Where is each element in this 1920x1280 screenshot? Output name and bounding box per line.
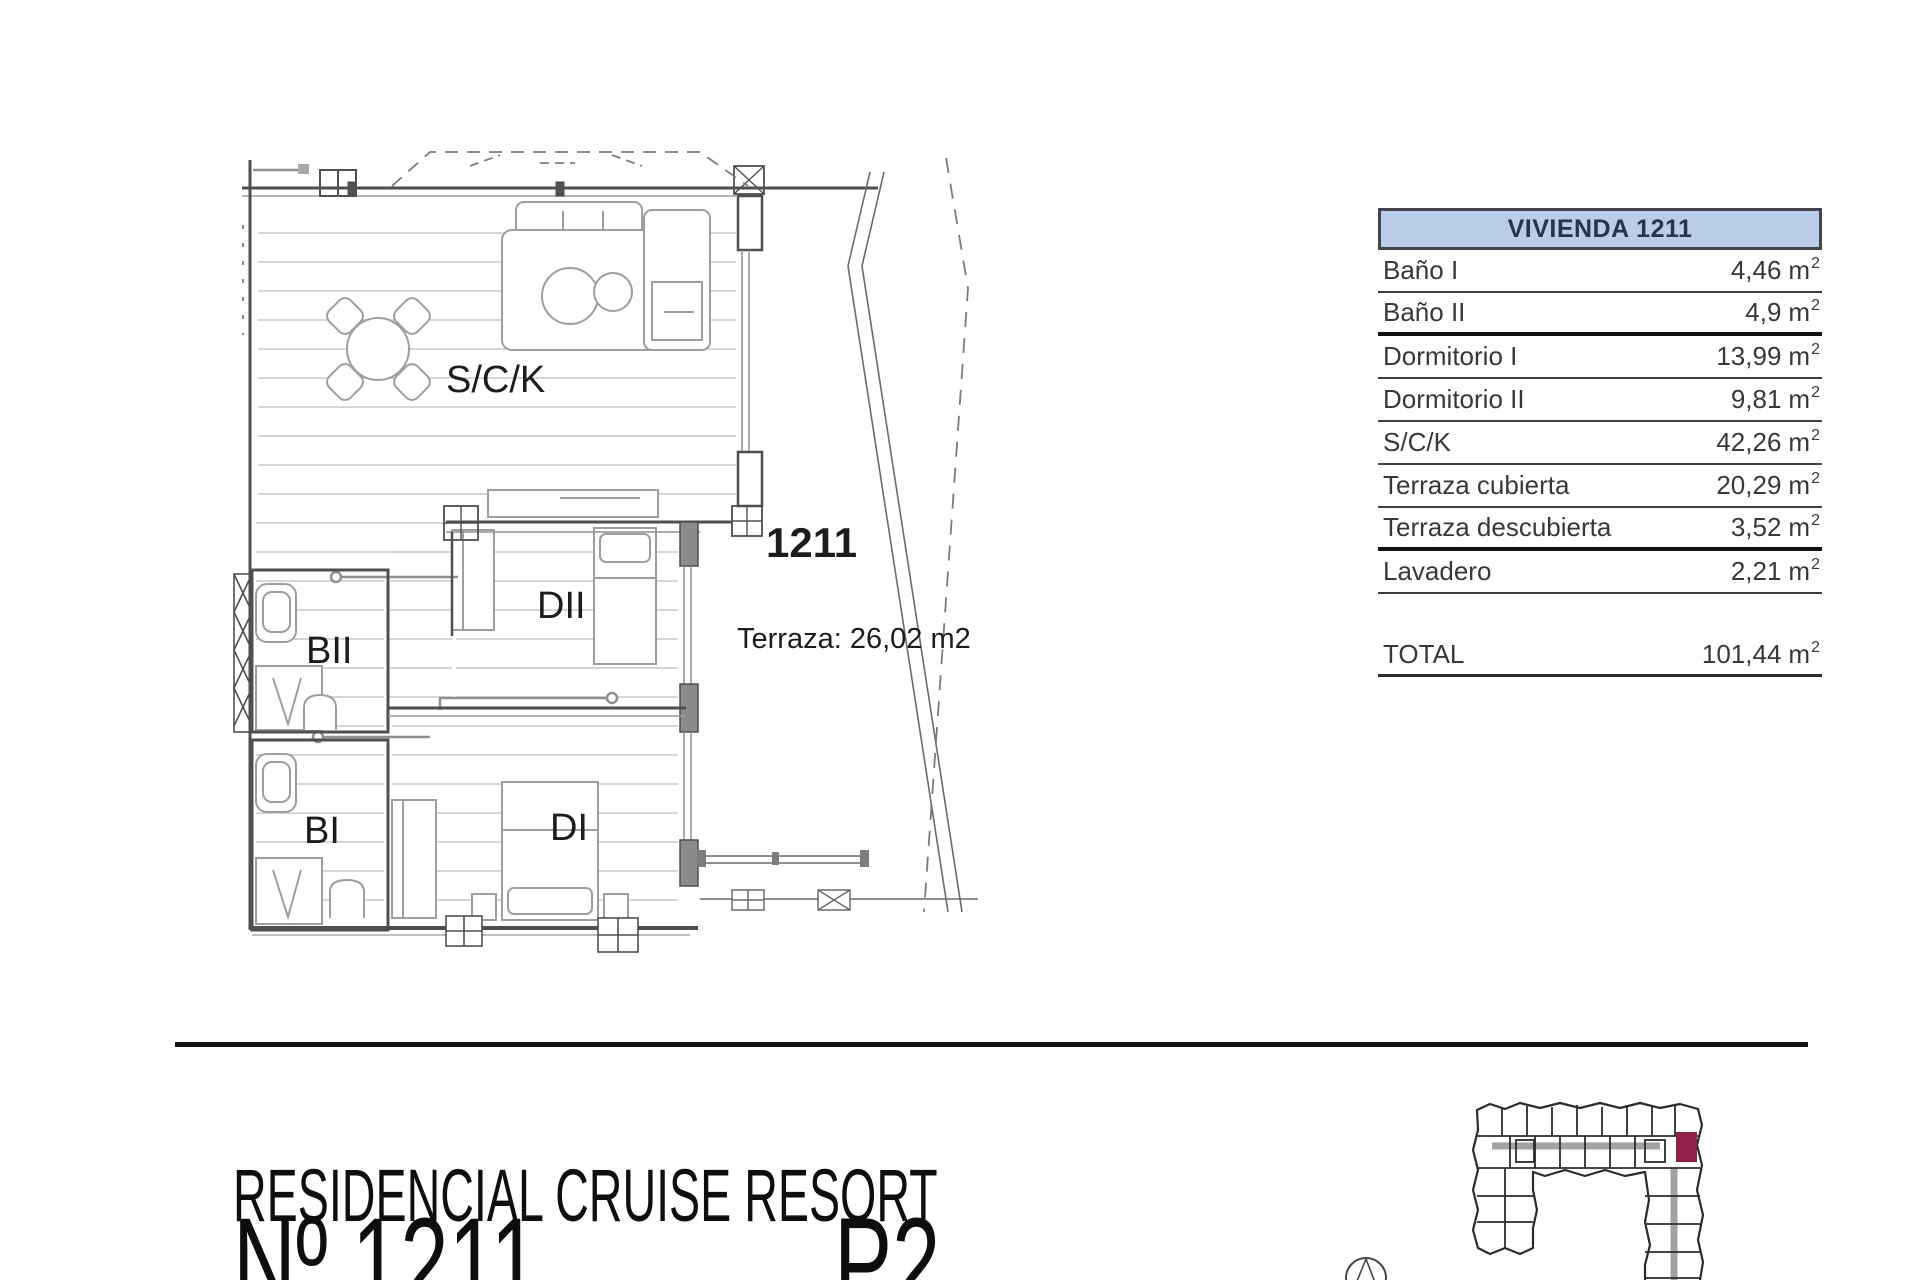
room-name: Dormitorio II — [1383, 384, 1525, 415]
site-key-plan — [1346, 1103, 1703, 1280]
sink-bowl-small — [594, 273, 632, 311]
overhang-dashes — [392, 152, 748, 186]
kitchen-units — [502, 202, 710, 350]
area-table: VIVIENDA 1211 Baño I 4,46m2 Baño II 4,9m… — [1378, 208, 1822, 677]
plan-sheet: S/C/K DII BII BI DI 1211 Terraza: 26,02 … — [0, 0, 1920, 1280]
table-row: Baño I 4,46m2 — [1378, 250, 1822, 293]
label-bath2: BII — [306, 630, 352, 672]
room-name: Terraza cubierta — [1383, 470, 1569, 501]
room-area: 13,99 — [1716, 341, 1781, 372]
unit-number-label: 1211 — [766, 519, 857, 566]
wardrobe-dii — [452, 530, 494, 630]
room-area: 42,26 — [1716, 427, 1781, 458]
title-block-divider — [175, 1042, 1808, 1047]
wardrobe-di — [392, 800, 436, 918]
label-bedroom2: DII — [537, 585, 586, 627]
round-table — [347, 318, 409, 380]
sideboard — [488, 490, 658, 517]
room-area: 3,52 — [1731, 512, 1782, 543]
title-block: Nº 1211 P2 — [0, 1200, 1100, 1280]
floor-title: P2 — [834, 1200, 940, 1280]
table-row: Lavadero 2,21m2 — [1378, 551, 1822, 594]
table-row: Baño II 4,9m2 — [1378, 293, 1822, 336]
room-name: Lavadero — [1383, 556, 1491, 587]
total-area: 101,44 — [1702, 639, 1782, 670]
table-row: Dormitorio II 9,81m2 — [1378, 379, 1822, 422]
room-name: Baño II — [1383, 297, 1465, 328]
room-area: 20,29 — [1716, 470, 1781, 501]
table-row: Terraza cubierta 20,29m2 — [1378, 465, 1822, 508]
label-living: S/C/K — [446, 359, 545, 401]
total-label: TOTAL — [1383, 639, 1464, 670]
room-name: Baño I — [1383, 255, 1458, 286]
room-name: S/C/K — [1383, 427, 1451, 458]
room-name: Terraza descubierta — [1383, 512, 1611, 543]
table-row: Terraza descubierta 3,52m2 — [1378, 508, 1822, 551]
table-row: S/C/K 42,26m2 — [1378, 422, 1822, 465]
room-area: 4,46 — [1731, 255, 1782, 286]
building-outline — [1473, 1103, 1703, 1280]
room-area: 4,9 — [1745, 297, 1781, 328]
total-row: TOTAL 101,44m2 — [1378, 634, 1822, 677]
highlighted-unit — [1676, 1132, 1697, 1162]
table-row: Dormitorio I 13,99m2 — [1378, 336, 1822, 379]
room-name: Dormitorio I — [1383, 341, 1517, 372]
label-bedroom1: DI — [550, 807, 588, 849]
unit-number-title: Nº 1211 — [233, 1200, 539, 1280]
label-bath1: BI — [304, 810, 340, 852]
terrace-area-label: Terraza: 26,02 m2 — [737, 623, 971, 655]
sink-bowl — [542, 268, 598, 324]
compass-icon — [1346, 1258, 1386, 1280]
room-area: 9,81 — [1731, 384, 1782, 415]
room-area: 2,21 — [1731, 556, 1782, 587]
area-table-header: VIVIENDA 1211 — [1378, 208, 1822, 250]
